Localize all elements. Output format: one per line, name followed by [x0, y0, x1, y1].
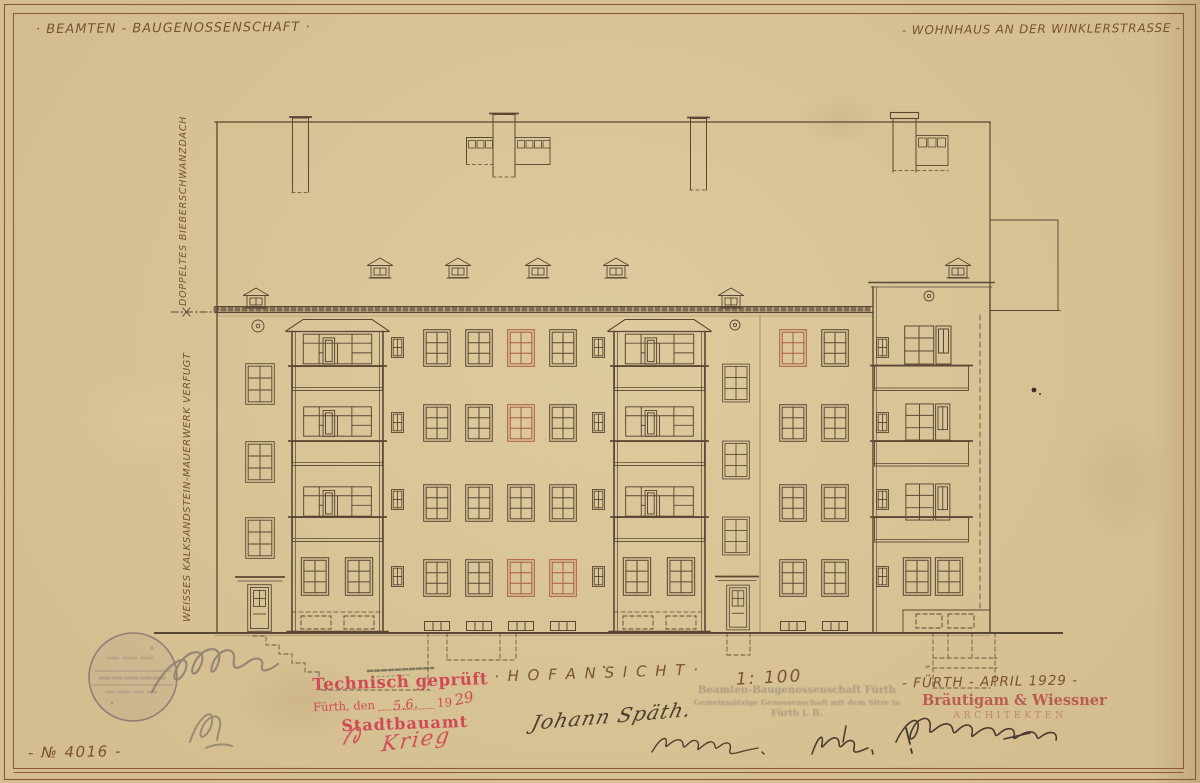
dormer	[445, 258, 471, 278]
architect-firm-title: ARCHITEKTEN	[922, 710, 1098, 721]
dormer-row	[243, 258, 971, 308]
window	[780, 560, 807, 597]
ground-line	[155, 633, 1062, 636]
balcony-door-window	[906, 404, 950, 440]
basement-window	[467, 622, 492, 631]
window	[466, 560, 493, 597]
window	[466, 405, 493, 442]
entrance-door-1	[248, 585, 272, 632]
architect-firm-name: Bräutigam & Wiessner	[922, 692, 1098, 709]
window	[550, 330, 577, 367]
window-red	[508, 560, 535, 597]
approval-stamp: Technisch geprüft Fürth, den 5.6. 19 29 …	[312, 669, 496, 736]
window-red	[508, 330, 535, 367]
dormer	[525, 258, 551, 278]
basement-window	[425, 622, 450, 631]
dormer	[243, 288, 269, 308]
roof-margin-note: DOPPELTES BIEBERSCHWANZDACH	[178, 116, 189, 306]
dormer	[603, 258, 629, 278]
window	[550, 485, 577, 522]
window	[780, 405, 807, 442]
round-stamp	[89, 633, 177, 721]
window	[550, 405, 577, 442]
corner-pavilion	[869, 283, 994, 633]
dormer	[718, 288, 744, 308]
faded-stamp-line3: Fürth i. B.	[693, 708, 901, 720]
window	[822, 560, 849, 597]
window-field-2	[780, 330, 849, 631]
balcony-tower-2	[608, 320, 711, 632]
header-left-title: · BEAMTEN - BAUGENOSSENSCHAFT ·	[36, 20, 311, 37]
window-field-1	[424, 330, 577, 631]
facade	[236, 283, 994, 633]
roof	[171, 113, 1060, 633]
landing-window	[723, 364, 750, 402]
window	[424, 330, 451, 367]
basement-window	[551, 622, 576, 631]
window	[903, 558, 930, 596]
window	[822, 405, 849, 442]
window-red	[550, 560, 577, 597]
balcony-door-window	[906, 484, 950, 520]
dormer	[367, 258, 393, 278]
architect-firm-stamp: Bräutigam & Wiessner ARCHITEKTEN	[922, 692, 1098, 721]
approval-century: 19	[437, 695, 453, 710]
approval-date-handwritten: 5.6.	[393, 697, 419, 715]
balcony-tower-1	[286, 320, 389, 632]
landing-window	[246, 364, 275, 405]
window	[508, 485, 535, 522]
window	[780, 485, 807, 522]
landing-window	[246, 518, 275, 559]
balcony-door-window	[905, 326, 951, 364]
approval-year-handwritten: 29	[453, 688, 475, 710]
basement-window	[823, 622, 848, 631]
roof-note-leader	[171, 308, 216, 316]
chimney-3	[688, 118, 709, 191]
dormer	[945, 258, 971, 278]
window	[935, 558, 962, 596]
basement-window	[781, 622, 806, 631]
landing-window	[723, 517, 750, 555]
window	[466, 485, 493, 522]
faded-stamp-line2: Gemeinnützige Genossenschaft mit dem Sit…	[693, 698, 901, 708]
sheet-number: - № 4016 -	[28, 742, 122, 762]
chimney-2-vent-stack	[467, 114, 551, 178]
entrance-door-2	[727, 585, 750, 630]
window	[822, 485, 849, 522]
window-red	[780, 330, 807, 367]
stair-bay-2	[716, 316, 760, 632]
window	[466, 330, 493, 367]
drawing-sheet: · BEAMTEN - BAUGENOSSENSCHAFT · - WOHNHA…	[0, 0, 1200, 783]
small-window-columns	[392, 338, 889, 587]
header-right-title: - WOHNHAUS AN DER WINKLERSTRASSE -	[902, 21, 1181, 37]
landing-window	[246, 442, 275, 483]
window	[424, 560, 451, 597]
adjoining-building-lines	[990, 220, 1060, 311]
eaves-gutter	[215, 307, 873, 317]
approval-city-prefix: Fürth, den	[313, 698, 375, 714]
window	[424, 485, 451, 522]
stair-bay-1	[236, 320, 284, 631]
window	[424, 405, 451, 442]
window-red	[508, 405, 535, 442]
landing-window	[723, 441, 750, 479]
masonry-margin-note: WEISSES KALKSANDSTEIN-MAUERWERK VERFUGT	[182, 330, 193, 622]
faded-stamp-line1: Beamten-Baugenossenschaft Fürth	[693, 684, 901, 698]
architect-location-date: - FÜRTH - APRIL 1929 -	[902, 672, 1078, 691]
faded-coop-stamp: Beamten-Baugenossenschaft Fürth Gemeinnü…	[693, 684, 901, 720]
chimney-1	[290, 117, 311, 193]
window	[822, 330, 849, 367]
basement-window	[509, 622, 534, 631]
